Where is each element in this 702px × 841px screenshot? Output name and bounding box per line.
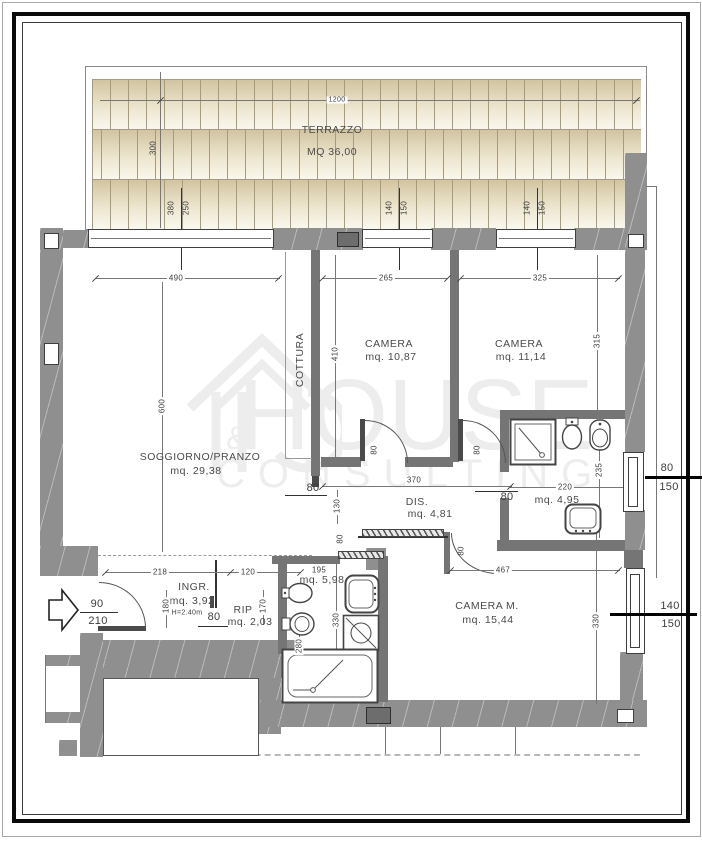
room-area-soggiorno: mq. 29,38 <box>170 465 221 477</box>
window <box>362 229 433 248</box>
bidet <box>560 417 584 451</box>
window-size-label: 150 <box>538 201 547 215</box>
window-size-label: 140 <box>385 201 394 215</box>
door-leaf <box>458 419 463 461</box>
entrance-arrow-icon <box>48 588 80 632</box>
wall-stub <box>59 740 77 756</box>
dim-line-467 <box>450 570 620 571</box>
wall-segment <box>260 700 647 727</box>
exterior-edge-line <box>656 186 657 578</box>
balcony-wall <box>45 712 80 723</box>
kitchen-zone-outline <box>285 458 312 459</box>
wall-niche <box>628 234 644 248</box>
partition-wall <box>311 250 320 476</box>
exterior-edge-line <box>646 186 657 187</box>
door-size-label: 90 <box>91 598 104 610</box>
dim-line-1200 <box>100 100 640 101</box>
terrace-area: MQ 36,00 <box>307 146 357 158</box>
sliding-door <box>338 551 384 559</box>
floor-plan-sheet: & HOUSE CONSULTING <box>0 0 702 841</box>
wall-inset <box>337 232 359 247</box>
door-leaf <box>360 419 365 461</box>
window <box>88 229 274 248</box>
room-area-dis: mq. 4,81 <box>408 508 453 520</box>
door-dim-line <box>80 612 118 613</box>
sliding-door <box>362 529 444 537</box>
washing-machine <box>342 614 380 652</box>
window-size-label: 150 <box>659 481 678 493</box>
balcony-wall <box>45 655 80 666</box>
dim-label: 467 <box>494 566 512 575</box>
wall-segment <box>85 640 300 678</box>
door-size-label: 210 <box>88 615 107 627</box>
dim-label: 490 <box>167 274 185 283</box>
balcony-below-line <box>440 727 441 754</box>
kitchen-zone-outline <box>285 252 286 458</box>
balcony-below-line <box>385 727 386 754</box>
dim-line-600 <box>162 282 163 552</box>
room-area-ingresso: mq. 3,92 <box>170 595 215 607</box>
dim-label: 120 <box>239 568 257 577</box>
dim-label: 325 <box>531 274 549 283</box>
ceiling-height-label: H=2.40m <box>172 610 203 617</box>
window-size-label: 80 <box>661 462 674 474</box>
room-label-ingresso: INGR. <box>178 581 210 593</box>
sink <box>564 503 602 535</box>
dim-label: 220 <box>556 483 574 492</box>
wall-pillar <box>624 550 643 568</box>
room-area-camera1: mq. 10,87 <box>365 351 416 363</box>
dim-label: 1200 <box>327 97 348 104</box>
wall-segment <box>625 510 645 550</box>
room-label-camera1: CAMERA <box>365 338 413 350</box>
door-width-label: 80 <box>457 546 466 556</box>
room-label-rip: RIP <box>233 604 252 616</box>
underline-80 <box>198 626 228 627</box>
window-size-label: 140 <box>523 201 532 215</box>
shower-tray <box>509 418 557 466</box>
radiator-inner <box>628 457 638 507</box>
wall-niche <box>44 233 59 249</box>
door-width-label: 80 <box>307 482 320 494</box>
dim-line-490 <box>95 278 280 279</box>
window-size-label: 250 <box>182 201 191 215</box>
wall-segment <box>40 546 98 576</box>
room-area-camera2: mq. 11,14 <box>496 351 546 363</box>
win-r2-dim-line <box>610 613 697 616</box>
door-width-label: 80 <box>336 534 345 544</box>
door-width-label: 80 <box>208 611 221 623</box>
wall-segment <box>620 652 643 705</box>
room-label-camera2: CAMERA <box>495 338 543 350</box>
wall-pillar-box <box>366 707 391 724</box>
dim-label: 280 <box>295 637 304 655</box>
sink <box>344 574 382 614</box>
partition-wall <box>321 457 361 467</box>
window-size-label: 380 <box>167 201 176 215</box>
wall-segment <box>40 250 63 546</box>
balcony-below-line <box>515 727 516 754</box>
terrace-tiles-row <box>92 79 641 130</box>
dim-line-300 <box>160 72 161 228</box>
dim-label: 235 <box>595 461 604 479</box>
bathtub <box>281 648 379 704</box>
window-inner <box>630 574 640 648</box>
partition-wall <box>405 457 453 467</box>
dim-label: 170 <box>259 597 268 615</box>
wall-segment <box>431 228 496 250</box>
rip-divider <box>215 560 217 608</box>
room-area-cameram: mq. 15,44 <box>462 614 513 626</box>
dim-label: 300 <box>149 141 158 155</box>
toilet <box>586 417 614 453</box>
dim-line-370 <box>322 486 512 487</box>
dim-label: 600 <box>158 397 167 415</box>
bath1-left-wall <box>500 498 509 542</box>
terrace-tiles-row <box>92 129 641 180</box>
window-size-label: 150 <box>661 618 680 630</box>
win-r1-dim-line <box>645 476 702 479</box>
window <box>496 229 576 248</box>
dim-label: 130 <box>333 497 342 515</box>
window-size-label: 140 <box>660 600 679 612</box>
room-area-bath1: mq. 4,95 <box>535 494 580 506</box>
room-area-rip: mq. 2,03 <box>228 616 273 628</box>
room-label-dis: DIS. <box>406 496 428 508</box>
dim-label: 218 <box>151 568 169 577</box>
dim-label: 180 <box>162 597 171 615</box>
room-label-cameram: CAMERA M. <box>455 600 518 612</box>
dim-label: 410 <box>331 345 340 363</box>
wall-segment <box>80 633 103 757</box>
underline-80 <box>285 495 327 496</box>
bath1-bottom-wall <box>497 540 625 551</box>
dim-label: 370 <box>405 476 423 485</box>
door-width-label: 80 <box>501 491 514 503</box>
toilet <box>281 609 317 639</box>
room-area-bath2: mq. 5,98 <box>300 574 345 586</box>
door-jamb <box>444 532 450 574</box>
window-size-label: 150 <box>400 201 409 215</box>
balcony-edge <box>45 655 46 723</box>
dim-line-218-120 <box>105 572 300 573</box>
dim-label: 265 <box>377 274 395 283</box>
kitchen-label: COTTURA <box>294 333 306 387</box>
wall-segment <box>625 250 645 452</box>
dim-label: 330 <box>332 611 341 629</box>
room-label-soggiorno: SOGGIORNO/PRANZO <box>140 451 261 463</box>
door-width-label: 80 <box>370 445 379 455</box>
dim-label: 315 <box>593 332 602 350</box>
stair-void <box>103 678 259 756</box>
wall-segment <box>63 230 88 248</box>
dim-label: 330 <box>592 612 601 630</box>
door-width-label: 80 <box>473 445 482 455</box>
wall-niche <box>44 343 59 365</box>
wall-niche <box>617 709 634 723</box>
terrace-title: TERRAZZO <box>302 124 363 136</box>
